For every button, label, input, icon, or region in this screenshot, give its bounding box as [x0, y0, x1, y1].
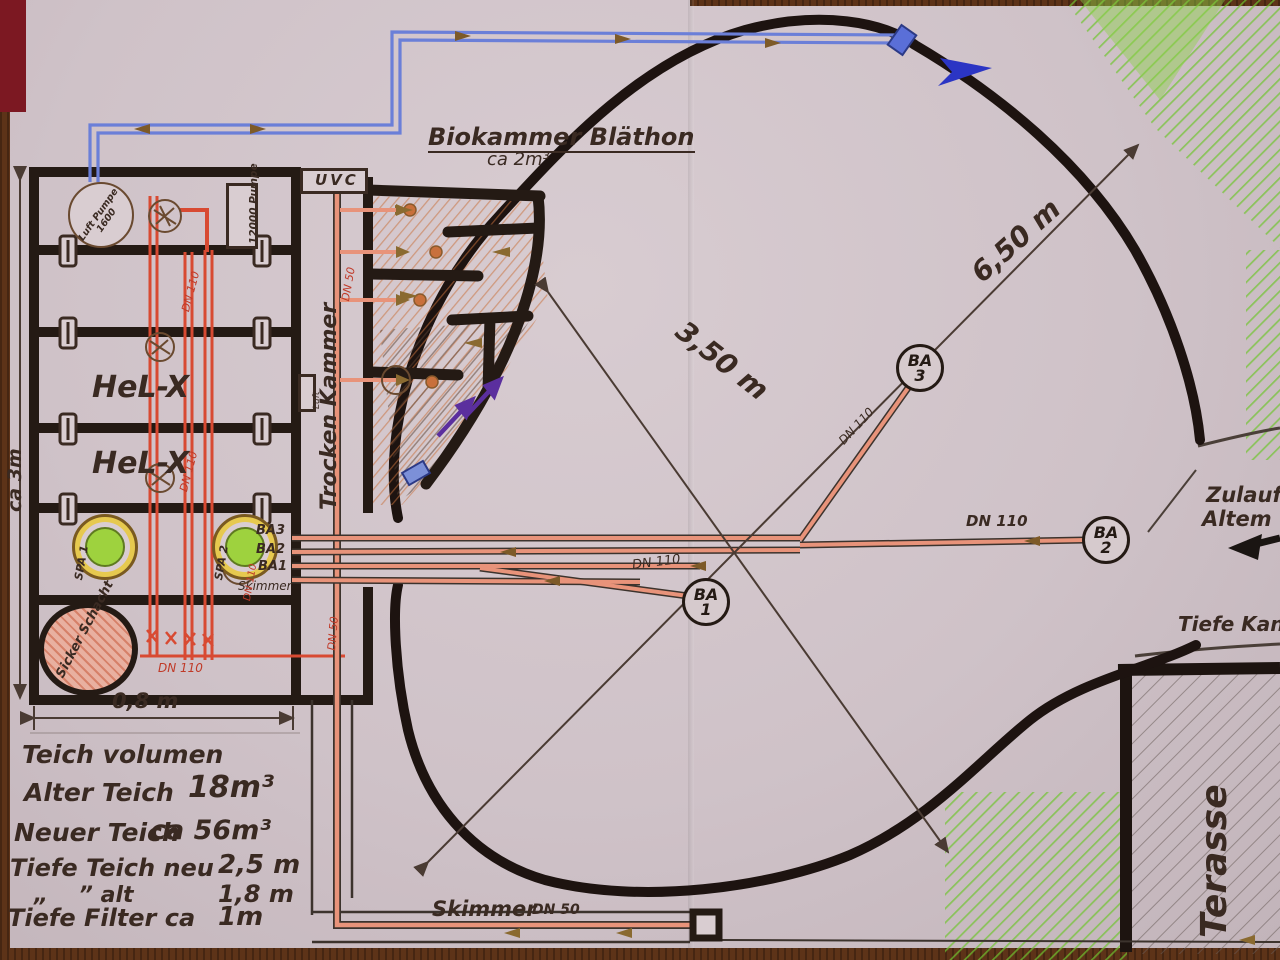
pipe-end-ba1: BA1	[258, 560, 287, 574]
skimmer-line-label: Skimmer	[432, 898, 537, 920]
dim-ca3m-label: ca 3m	[6, 448, 26, 512]
air-pump-label: Luft Pumpe 1600	[77, 187, 129, 249]
notes-v2: 18m³	[188, 772, 274, 804]
uvc-label: UVC	[315, 173, 359, 189]
spa2-label: SPA 2	[213, 545, 230, 581]
bottom-drain-ba2: BA2	[1082, 516, 1130, 564]
notes-v3: ca 56m³	[150, 817, 271, 845]
pump-12000-label: 12000 Pumpe	[249, 163, 260, 244]
spa1-sieve: SPA 1	[72, 514, 138, 580]
pipe-end-ba2: BA2	[256, 543, 285, 557]
notes-v4: 2,5 m	[218, 852, 300, 879]
notes-title: Teich volumen	[22, 742, 223, 768]
notes-v6: 1m	[218, 904, 263, 931]
helx-label-2: HeL-X	[92, 448, 189, 480]
pipe-end-ba3: BA3	[256, 524, 285, 538]
ba1-number: 1	[700, 602, 711, 617]
ba3-number: 3	[914, 368, 925, 383]
pump-12000-box: 12000 Pumpe	[226, 183, 258, 249]
ba2-number: 2	[1100, 540, 1111, 555]
dim-08-label: 0,8 m	[112, 690, 178, 712]
zulauf-label-2: Altem	[1202, 508, 1272, 530]
uvc-box: UVC	[300, 168, 368, 194]
plan-photo: Biokammer Bläthon ca 2m³ UVC Trocken Kam…	[0, 0, 1280, 960]
helx-label-1: HeL-X	[92, 372, 189, 404]
air-pump-circle: Luft Pumpe 1600	[68, 182, 134, 248]
biokammer	[368, 190, 548, 505]
bottom-drain-ba1: BA1	[682, 578, 730, 626]
notes-l2: Alter Teich	[24, 780, 174, 806]
biokammer-title: Biokammer Bläthon	[428, 125, 695, 153]
dn50-label-b: DN 50	[326, 616, 340, 651]
dn110-label-d: DN 110	[158, 662, 203, 675]
air-line-arrows	[134, 31, 781, 134]
terasse-label: Terasse	[1196, 784, 1234, 938]
luft-box: Luft	[298, 374, 316, 412]
notes-l4: Tiefe Teich neu	[10, 856, 214, 881]
spa1-label: SPA 1	[73, 545, 90, 581]
biokammer-subtitle: ca 2m³	[487, 151, 550, 170]
luft-box-label: Luft	[313, 392, 322, 409]
tiefe-kanal-label: Tiefe Kanal	[1178, 614, 1280, 635]
sicker-schacht: Sicker Schacht	[38, 602, 138, 696]
skimmer-dn50-label: DN 50	[532, 903, 580, 918]
bottom-drain-ba3: BA3	[896, 344, 944, 392]
skimmer-box	[693, 912, 719, 938]
dn110-label-main: DN 110	[966, 514, 1028, 530]
zulauf-label-1: Zulauf	[1206, 484, 1280, 506]
notes-l6: Tiefe Filter ca	[8, 906, 195, 931]
